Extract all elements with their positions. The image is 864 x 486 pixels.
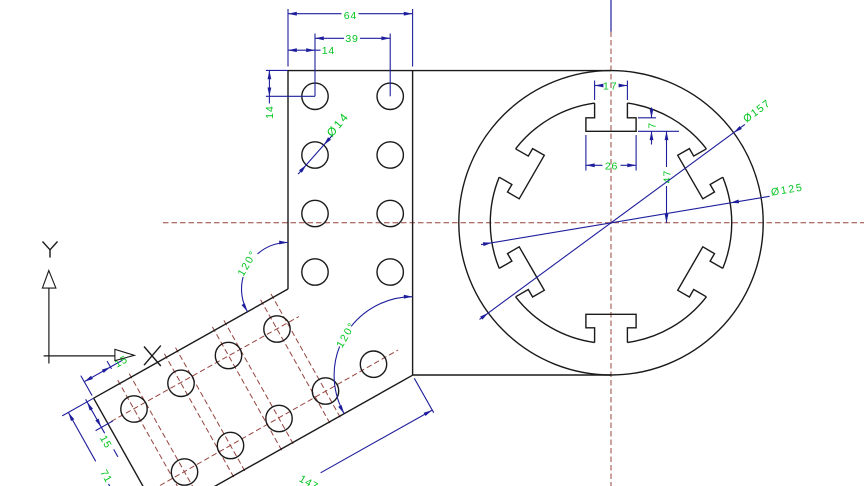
svg-text:17: 17: [603, 81, 619, 93]
svg-text:39: 39: [345, 33, 358, 45]
svg-text:26: 26: [605, 160, 618, 172]
svg-text:7: 7: [646, 122, 658, 129]
svg-text:64: 64: [344, 10, 357, 22]
svg-text:14: 14: [264, 105, 276, 119]
svg-text:14: 14: [322, 45, 335, 57]
